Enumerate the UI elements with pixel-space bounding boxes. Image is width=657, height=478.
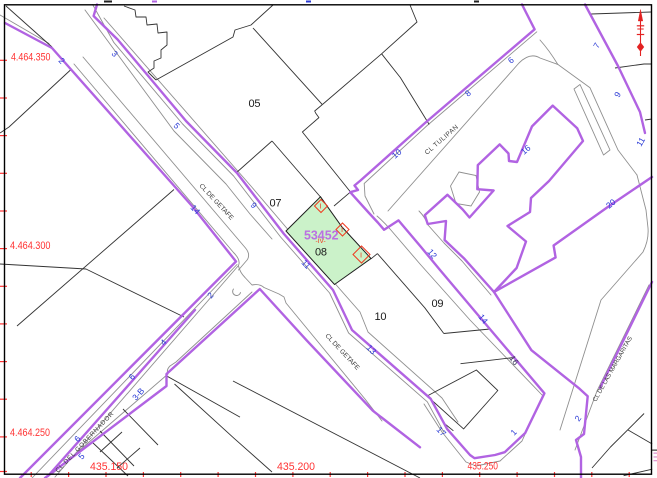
svg-text:08: 08: [315, 246, 327, 258]
svg-text:10: 10: [375, 311, 387, 323]
svg-text:4.464.350: 4.464.350: [11, 52, 51, 64]
svg-text:09: 09: [432, 298, 444, 310]
svg-text:435.250: 435.250: [468, 461, 499, 473]
svg-text:435.200: 435.200: [277, 461, 315, 473]
svg-text:I: I: [360, 251, 362, 260]
svg-text:4.464.300: 4.464.300: [10, 240, 51, 252]
svg-text:05: 05: [249, 98, 261, 110]
svg-text:I: I: [341, 225, 343, 234]
svg-text:07: 07: [270, 197, 282, 209]
svg-text:-IV-: -IV-: [316, 238, 326, 245]
svg-text:435.150: 435.150: [90, 461, 128, 473]
svg-text:I: I: [320, 202, 322, 211]
svg-text:4.464.250: 4.464.250: [10, 427, 50, 439]
